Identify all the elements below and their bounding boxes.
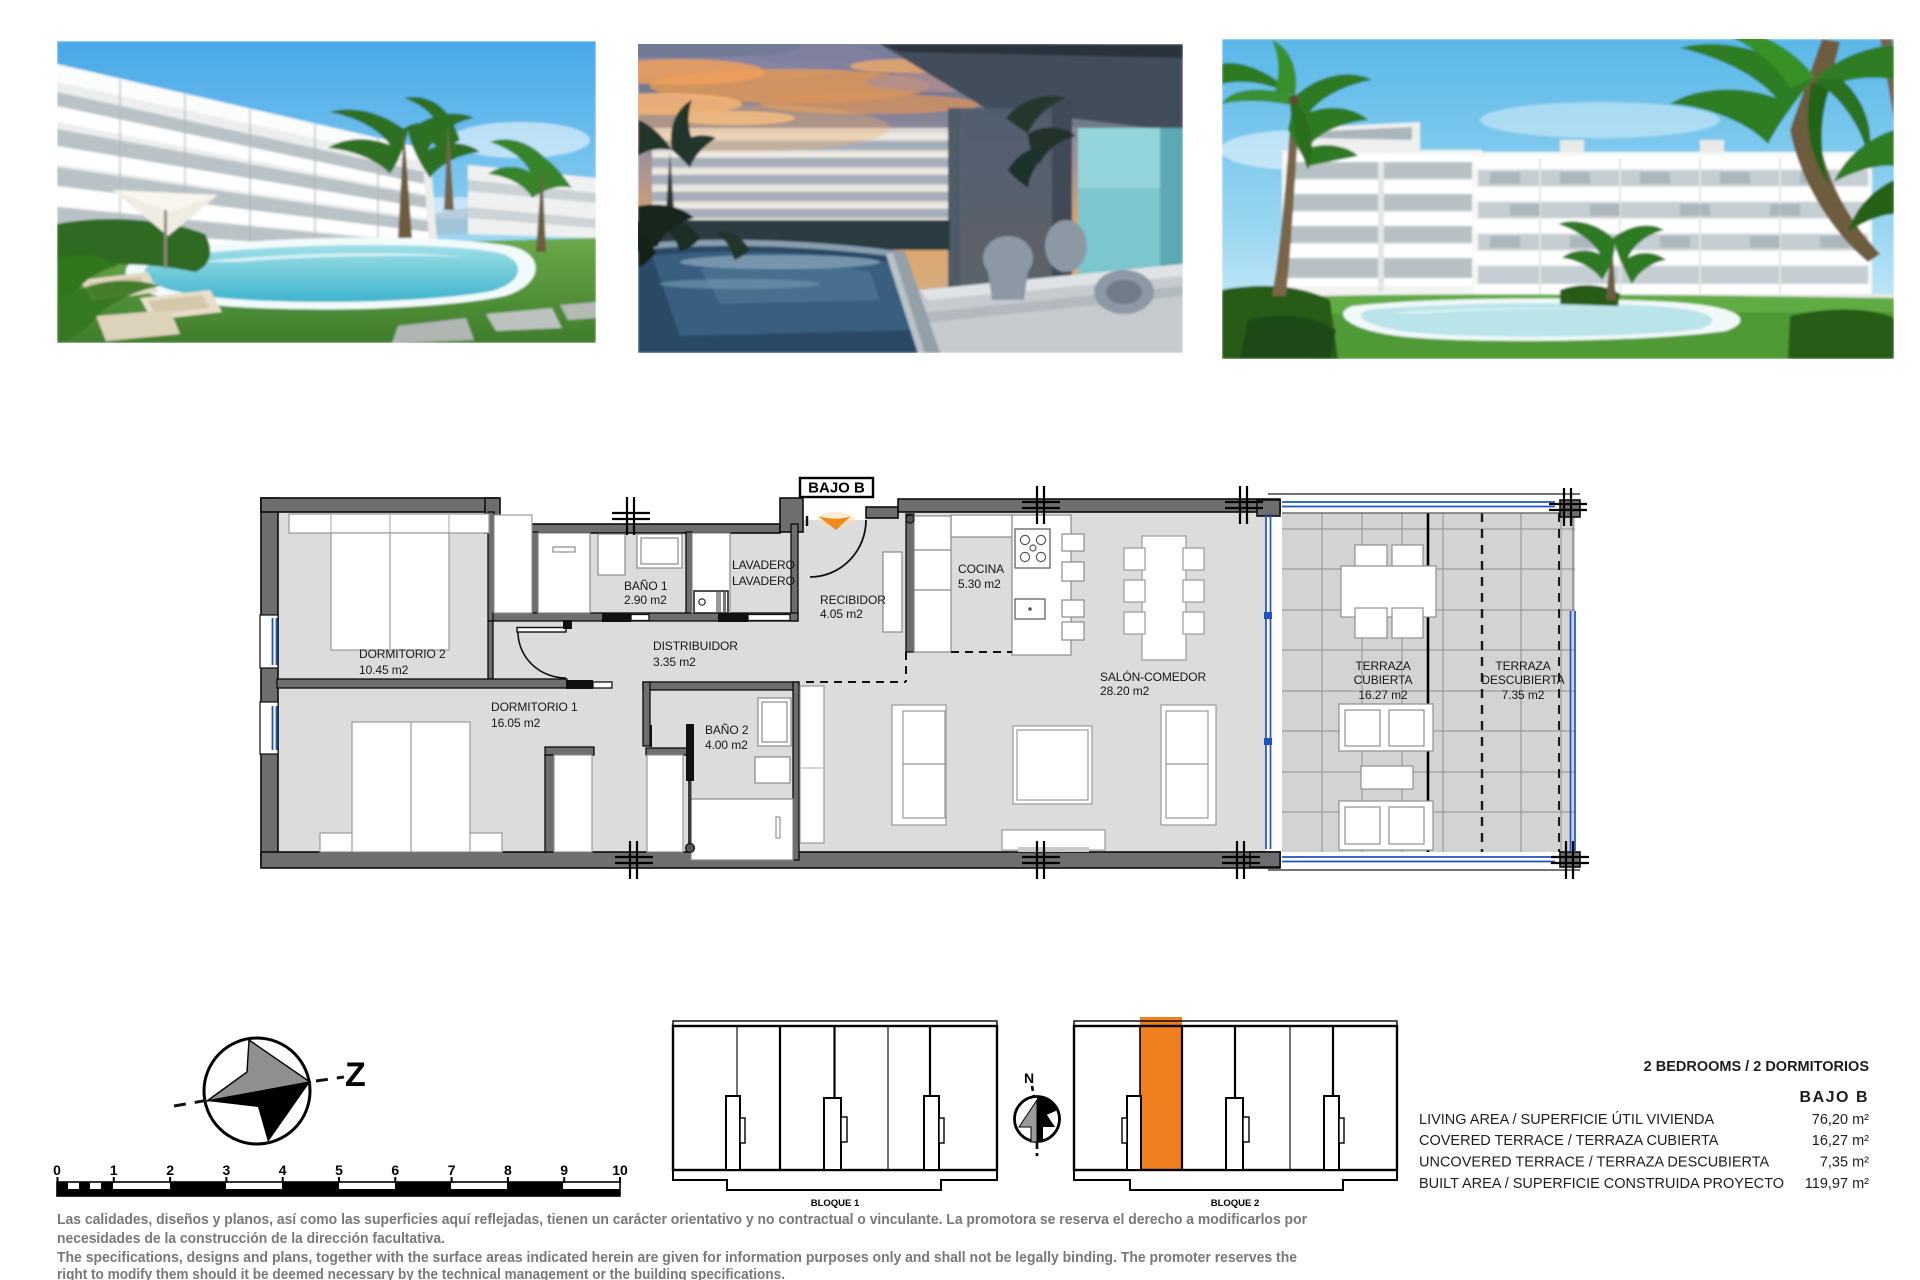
svg-text:LIVING AREA / SUPERFICIE ÚTIL: LIVING AREA / SUPERFICIE ÚTIL VIVIENDA: [1419, 1111, 1715, 1128]
svg-text:BAÑO 2: BAÑO 2: [705, 723, 749, 737]
svg-text:16.05 m2: 16.05 m2: [491, 716, 541, 730]
svg-text:7: 7: [448, 1162, 456, 1178]
svg-text:16,27 m²: 16,27 m²: [1812, 1133, 1869, 1149]
svg-text:COCINA: COCINA: [958, 562, 1004, 576]
svg-text:TERRAZA: TERRAZA: [1495, 659, 1550, 673]
svg-text:Z: Z: [345, 1056, 366, 1094]
svg-text:7.35 m2: 7.35 m2: [1502, 688, 1545, 702]
svg-text:2 BEDROOMS / 2 DORMITORIOS: 2 BEDROOMS / 2 DORMITORIOS: [1644, 1059, 1870, 1075]
svg-text:BAÑO 1: BAÑO 1: [624, 579, 668, 593]
svg-text:BAJO B: BAJO B: [808, 480, 865, 497]
svg-text:4: 4: [279, 1162, 287, 1178]
svg-text:3.35 m2: 3.35 m2: [653, 655, 696, 669]
svg-text:UNCOVERED TERRACE / TERRAZA DE: UNCOVERED TERRACE / TERRAZA DESCUBIERTA: [1419, 1155, 1770, 1171]
svg-text:16.27 m2: 16.27 m2: [1358, 688, 1408, 702]
svg-text:4.05 m2: 4.05 m2: [820, 607, 863, 621]
svg-text:DISTRIBUIDOR: DISTRIBUIDOR: [653, 639, 738, 653]
svg-text:SALÓN-COMEDOR: SALÓN-COMEDOR: [1100, 669, 1206, 684]
svg-text:4.00 m2: 4.00 m2: [705, 738, 748, 752]
svg-text:6: 6: [391, 1162, 399, 1178]
svg-text:28.20 m2: 28.20 m2: [1100, 684, 1150, 698]
svg-text:The specifications, designs an: The specifications, designs and plans, t…: [57, 1249, 1297, 1266]
svg-text:10: 10: [612, 1162, 628, 1178]
svg-text:5.30 m2: 5.30 m2: [958, 577, 1001, 591]
svg-text:BLOQUE 1: BLOQUE 1: [811, 1198, 860, 1209]
svg-text:N: N: [1024, 1070, 1034, 1086]
svg-text:DESCUBIERTA: DESCUBIERTA: [1481, 673, 1564, 687]
svg-text:COVERED TERRACE / TERRAZA CUBI: COVERED TERRACE / TERRAZA CUBIERTA: [1419, 1133, 1719, 1149]
svg-text:BLOQUE 2: BLOQUE 2: [1211, 1198, 1260, 1209]
svg-text:LAVADERO: LAVADERO: [732, 558, 795, 572]
svg-text:0: 0: [53, 1162, 61, 1178]
svg-text:2.90 m2: 2.90 m2: [624, 593, 667, 607]
svg-text:10.45 m2: 10.45 m2: [359, 663, 409, 677]
svg-text:7,35 m²: 7,35 m²: [1820, 1155, 1869, 1171]
svg-text:DORMITORIO 2: DORMITORIO 2: [359, 647, 446, 661]
svg-text:76,20 m²: 76,20 m²: [1812, 1112, 1869, 1128]
svg-text:TERRAZA: TERRAZA: [1355, 659, 1410, 673]
svg-text:RECIBIDOR: RECIBIDOR: [820, 593, 886, 607]
svg-text:9: 9: [560, 1162, 568, 1178]
svg-text:8: 8: [504, 1162, 512, 1178]
svg-text:3: 3: [223, 1162, 231, 1178]
svg-text:CUBIERTA: CUBIERTA: [1354, 673, 1413, 687]
svg-text:119,97 m²: 119,97 m²: [1805, 1176, 1869, 1192]
svg-text:1: 1: [110, 1162, 118, 1178]
svg-text:BAJO B: BAJO B: [1800, 1089, 1869, 1106]
svg-text:DORMITORIO 1: DORMITORIO 1: [491, 700, 578, 714]
svg-text:5: 5: [335, 1162, 343, 1178]
svg-text:Las calidades, diseños y plano: Las calidades, diseños y planos, así com…: [57, 1211, 1307, 1228]
svg-text:necesidades de la construcción: necesidades de la construcción de la dir…: [57, 1230, 445, 1247]
svg-text:2: 2: [166, 1162, 174, 1178]
svg-text:LAVADERO: LAVADERO: [732, 574, 795, 588]
svg-text:right to modify them should it: right to modify them should it be deemed…: [57, 1266, 785, 1280]
svg-text:BUILT AREA / SUPERFICIE CONSTR: BUILT AREA / SUPERFICIE CONSTRUIDA PROYE…: [1419, 1176, 1784, 1192]
